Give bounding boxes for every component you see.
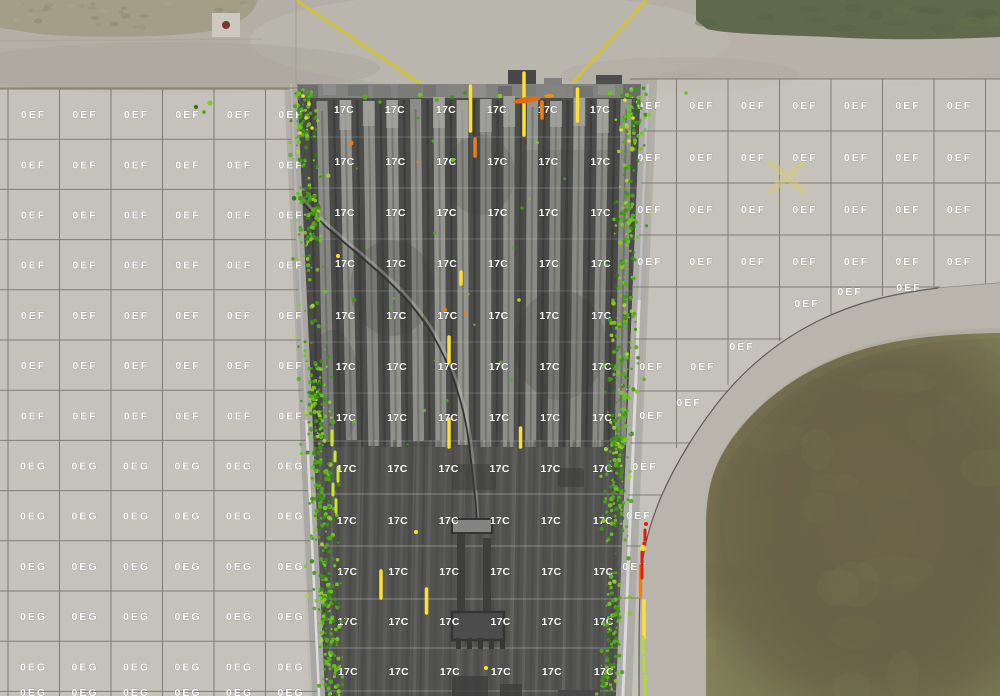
svg-text:17C: 17C	[440, 666, 460, 678]
svg-text:0EF: 0EF	[124, 410, 149, 422]
svg-text:0EF: 0EF	[895, 256, 920, 268]
svg-text:0EF: 0EF	[794, 298, 819, 310]
svg-text:0EF: 0EF	[175, 260, 200, 272]
svg-text:0EF: 0EF	[227, 109, 252, 121]
svg-text:17C: 17C	[490, 566, 510, 578]
svg-text:0EF: 0EF	[227, 260, 252, 272]
svg-text:0EF: 0EF	[278, 310, 303, 322]
svg-text:17C: 17C	[538, 156, 558, 168]
svg-text:0EF: 0EF	[21, 410, 46, 422]
svg-text:17C: 17C	[437, 207, 457, 219]
svg-text:0EF: 0EF	[729, 341, 754, 353]
svg-text:0EF: 0EF	[689, 152, 714, 164]
svg-text:0EF: 0EF	[792, 152, 817, 164]
svg-text:0EF: 0EF	[676, 397, 701, 409]
svg-text:17C: 17C	[592, 361, 612, 373]
svg-text:0EG: 0EG	[123, 561, 150, 573]
svg-text:17C: 17C	[489, 361, 509, 373]
svg-text:0EF: 0EF	[741, 100, 766, 112]
svg-text:0EF: 0EF	[175, 109, 200, 121]
svg-text:0EG: 0EG	[174, 661, 201, 673]
svg-text:0EF: 0EF	[689, 100, 714, 112]
svg-text:0EG: 0EG	[277, 687, 304, 696]
svg-text:0EF: 0EF	[632, 461, 657, 473]
svg-text:17C: 17C	[439, 463, 459, 475]
svg-text:0EG: 0EG	[226, 611, 253, 623]
svg-text:0EF: 0EF	[895, 152, 920, 164]
svg-text:0EF: 0EF	[227, 210, 252, 222]
svg-text:17C: 17C	[334, 156, 354, 168]
svg-text:17C: 17C	[488, 310, 508, 322]
svg-text:17C: 17C	[491, 666, 511, 678]
svg-text:17C: 17C	[590, 156, 610, 168]
svg-text:17C: 17C	[386, 207, 406, 219]
svg-text:0EF: 0EF	[689, 256, 714, 268]
svg-text:0EF: 0EF	[72, 109, 97, 121]
svg-text:0EF: 0EF	[72, 410, 97, 422]
svg-text:17C: 17C	[437, 310, 457, 322]
svg-text:0EF: 0EF	[227, 310, 252, 322]
svg-text:17C: 17C	[591, 207, 611, 219]
svg-text:0EF: 0EF	[741, 152, 766, 164]
svg-text:0EF: 0EF	[896, 282, 921, 294]
svg-text:0EG: 0EG	[174, 561, 201, 573]
svg-text:17C: 17C	[487, 156, 507, 168]
svg-text:0EF: 0EF	[947, 100, 972, 112]
svg-text:0EF: 0EF	[21, 210, 46, 222]
svg-text:0EF: 0EF	[844, 204, 869, 216]
svg-text:0EG: 0EG	[71, 561, 98, 573]
svg-text:17C: 17C	[439, 566, 459, 578]
svg-text:0EG: 0EG	[20, 611, 47, 623]
svg-text:0EF: 0EF	[21, 360, 46, 372]
svg-text:0EF: 0EF	[278, 360, 303, 372]
svg-text:0EF: 0EF	[227, 360, 252, 372]
svg-text:17C: 17C	[385, 104, 405, 116]
svg-text:0EF: 0EF	[637, 100, 662, 112]
svg-text:0EF: 0EF	[124, 260, 149, 272]
svg-text:17C: 17C	[487, 104, 507, 116]
svg-text:17C: 17C	[388, 566, 408, 578]
svg-text:17C: 17C	[541, 566, 561, 578]
svg-text:0EF: 0EF	[626, 510, 651, 522]
svg-text:17C: 17C	[437, 258, 457, 270]
svg-text:0EF: 0EF	[124, 109, 149, 121]
svg-text:0EG: 0EG	[71, 611, 98, 623]
svg-text:0EF: 0EF	[690, 361, 715, 373]
svg-text:0EF: 0EF	[175, 210, 200, 222]
svg-text:17C: 17C	[335, 207, 355, 219]
svg-text:0EG: 0EG	[277, 561, 304, 573]
svg-text:17C: 17C	[489, 412, 509, 424]
svg-text:0EF: 0EF	[175, 410, 200, 422]
svg-text:0EG: 0EG	[20, 461, 47, 473]
svg-text:17C: 17C	[389, 616, 409, 628]
svg-text:0EG: 0EG	[123, 461, 150, 473]
svg-text:0EG: 0EG	[226, 561, 253, 573]
svg-text:17C: 17C	[540, 412, 560, 424]
svg-text:17C: 17C	[591, 258, 611, 270]
svg-text:0EF: 0EF	[792, 256, 817, 268]
svg-text:17C: 17C	[387, 412, 407, 424]
svg-text:0EF: 0EF	[637, 256, 662, 268]
svg-text:17C: 17C	[541, 515, 561, 527]
svg-text:17C: 17C	[541, 463, 561, 475]
svg-text:0EG: 0EG	[20, 661, 47, 673]
svg-text:17C: 17C	[539, 258, 559, 270]
svg-text:0EF: 0EF	[947, 204, 972, 216]
svg-text:17C: 17C	[490, 515, 510, 527]
svg-text:0EG: 0EG	[226, 511, 253, 523]
svg-text:0EG: 0EG	[226, 687, 253, 696]
svg-text:17C: 17C	[386, 310, 406, 322]
svg-text:17C: 17C	[386, 258, 406, 270]
svg-text:0EF: 0EF	[844, 100, 869, 112]
svg-text:17C: 17C	[491, 616, 511, 628]
svg-text:17C: 17C	[335, 310, 355, 322]
svg-text:17C: 17C	[436, 104, 456, 116]
svg-text:0EG: 0EG	[174, 611, 201, 623]
svg-text:0EF: 0EF	[947, 152, 972, 164]
svg-text:0EF: 0EF	[639, 410, 664, 422]
svg-text:0EF: 0EF	[72, 210, 97, 222]
svg-text:0EF: 0EF	[895, 100, 920, 112]
svg-text:17C: 17C	[334, 104, 354, 116]
svg-text:0EF: 0EF	[741, 204, 766, 216]
svg-text:0EF: 0EF	[622, 561, 647, 573]
svg-text:17C: 17C	[335, 258, 355, 270]
svg-text:17C: 17C	[488, 207, 508, 219]
svg-text:0EF: 0EF	[175, 360, 200, 372]
svg-text:0EF: 0EF	[637, 152, 662, 164]
svg-text:0EG: 0EG	[71, 511, 98, 523]
svg-text:0EG: 0EG	[123, 511, 150, 523]
svg-text:0EF: 0EF	[741, 256, 766, 268]
svg-text:0EG: 0EG	[174, 461, 201, 473]
svg-text:0EG: 0EG	[20, 511, 47, 523]
svg-text:0EG: 0EG	[71, 661, 98, 673]
svg-text:0EF: 0EF	[278, 260, 303, 272]
svg-text:0EF: 0EF	[844, 152, 869, 164]
svg-text:0EF: 0EF	[278, 210, 303, 222]
svg-text:0EG: 0EG	[174, 687, 201, 696]
svg-text:17C: 17C	[542, 666, 562, 678]
svg-text:0EF: 0EF	[124, 310, 149, 322]
svg-text:0EF: 0EF	[124, 360, 149, 372]
svg-text:0EG: 0EG	[226, 661, 253, 673]
svg-text:0EG: 0EG	[123, 611, 150, 623]
svg-text:0EF: 0EF	[72, 260, 97, 272]
svg-text:0EF: 0EF	[175, 159, 200, 171]
svg-text:0EF: 0EF	[689, 204, 714, 216]
svg-text:0EG: 0EG	[277, 611, 304, 623]
svg-text:0EF: 0EF	[124, 210, 149, 222]
svg-text:17C: 17C	[539, 310, 559, 322]
svg-text:0EG: 0EG	[123, 661, 150, 673]
svg-text:17C: 17C	[590, 104, 610, 116]
svg-text:0EF: 0EF	[72, 360, 97, 372]
svg-text:0EF: 0EF	[837, 286, 862, 298]
svg-text:0EF: 0EF	[21, 159, 46, 171]
svg-text:0EG: 0EG	[277, 661, 304, 673]
svg-text:17C: 17C	[490, 463, 510, 475]
svg-text:17C: 17C	[542, 616, 562, 628]
svg-text:0EF: 0EF	[947, 256, 972, 268]
svg-text:17C: 17C	[337, 566, 357, 578]
svg-text:0EF: 0EF	[21, 310, 46, 322]
svg-text:17C: 17C	[389, 666, 409, 678]
svg-text:17C: 17C	[440, 616, 460, 628]
svg-text:0EF: 0EF	[72, 310, 97, 322]
svg-text:17C: 17C	[388, 463, 408, 475]
svg-text:17C: 17C	[540, 361, 560, 373]
svg-text:17C: 17C	[337, 515, 357, 527]
svg-text:0EF: 0EF	[227, 159, 252, 171]
svg-text:0EF: 0EF	[278, 410, 303, 422]
svg-text:0EF: 0EF	[639, 361, 664, 373]
svg-text:0EF: 0EF	[895, 204, 920, 216]
svg-text:17C: 17C	[388, 515, 408, 527]
svg-text:0EF: 0EF	[792, 100, 817, 112]
svg-text:17C: 17C	[336, 361, 356, 373]
svg-text:17C: 17C	[439, 515, 459, 527]
svg-text:17C: 17C	[385, 156, 405, 168]
svg-text:0EG: 0EG	[277, 461, 304, 473]
svg-text:0EG: 0EG	[71, 461, 98, 473]
svg-text:17C: 17C	[387, 361, 407, 373]
svg-text:0EG: 0EG	[20, 687, 47, 696]
svg-text:0EF: 0EF	[124, 159, 149, 171]
svg-text:0EF: 0EF	[227, 410, 252, 422]
svg-text:0EG: 0EG	[71, 687, 98, 696]
svg-text:0EF: 0EF	[792, 204, 817, 216]
svg-text:0EF: 0EF	[21, 260, 46, 272]
svg-text:0EF: 0EF	[72, 159, 97, 171]
svg-text:0EG: 0EG	[123, 687, 150, 696]
svg-text:0EG: 0EG	[20, 561, 47, 573]
svg-text:0EF: 0EF	[175, 310, 200, 322]
svg-text:17C: 17C	[539, 207, 559, 219]
svg-text:0EF: 0EF	[21, 109, 46, 121]
svg-text:17C: 17C	[488, 258, 508, 270]
svg-text:0EG: 0EG	[277, 511, 304, 523]
svg-text:0EG: 0EG	[174, 511, 201, 523]
svg-text:17C: 17C	[337, 463, 357, 475]
svg-text:0EF: 0EF	[844, 256, 869, 268]
svg-text:0EG: 0EG	[226, 461, 253, 473]
